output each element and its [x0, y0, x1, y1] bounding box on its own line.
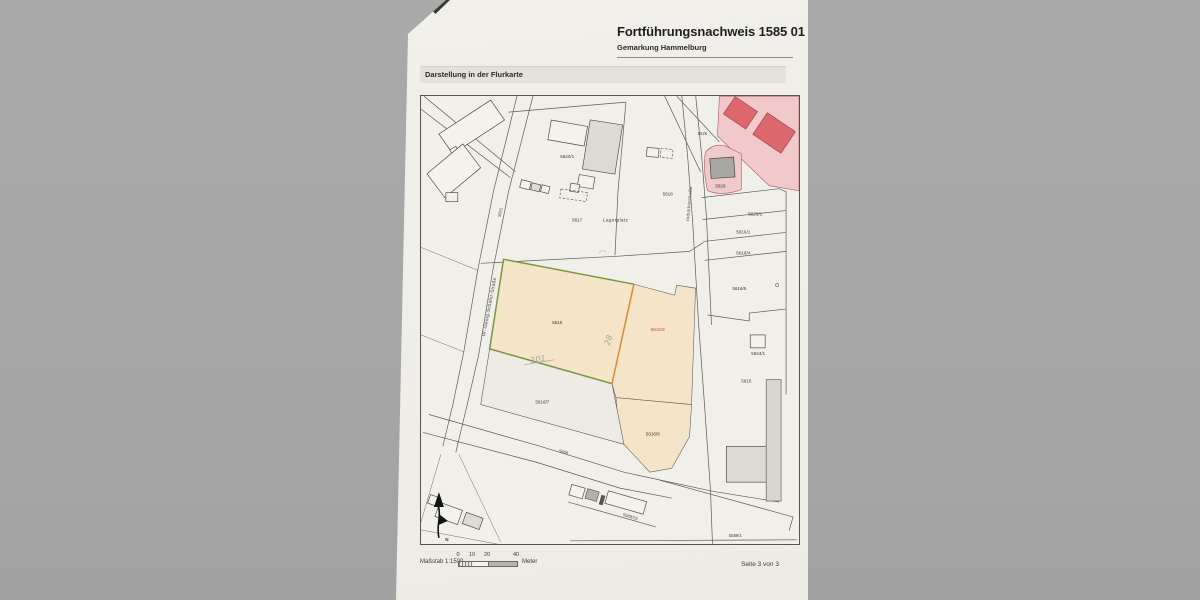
document-subtitle: Gemarkung Hammelburg	[617, 43, 707, 52]
scale-tick: 0	[456, 552, 459, 558]
map-label-5626-1: 5626/1	[748, 212, 762, 217]
section-bar: Darstellung in der Flurkarte	[420, 66, 786, 83]
page-corner-fold	[422, 0, 450, 14]
map-label-5616-4: 5616/4	[736, 250, 750, 255]
scale-tick: 40	[513, 552, 519, 558]
scale-bar-segment	[473, 562, 487, 566]
page-indicator: Seite 3 von 3	[741, 561, 779, 568]
map-label-5616-9: 5616/9	[651, 327, 665, 332]
header-divider	[617, 57, 793, 58]
map-label-5616: 5616	[552, 320, 563, 325]
cadastral-map-svg: N 101 28 5620/1 5617 Lagerplatz 5618 562…	[421, 96, 799, 544]
document-title: Fortführungsnachweis 1585 01	[617, 24, 805, 39]
map-label-5620-1: 5620/1	[560, 154, 574, 159]
north-label: N	[445, 537, 448, 542]
map-label-5615: 5615	[741, 379, 752, 384]
scale-tick: 10	[469, 552, 475, 558]
map-label-5617: 5617	[572, 218, 583, 223]
flurkarte-map: N 101 28 5620/1 5617 Lagerplatz 5618 562…	[420, 95, 800, 545]
map-label-5616-7: 5616/7	[535, 400, 549, 405]
section-label: Darstellung in der Flurkarte	[420, 67, 786, 83]
map-label-5625: 5625	[698, 131, 708, 136]
map-label-5589-1: 5589/1	[729, 533, 742, 538]
map-label-5616-5: 5616/5	[732, 286, 746, 291]
document-page: Fortführungsnachweis 1585 01 Gemarkung H…	[394, 0, 808, 600]
map-label-5616-8: 5616/8	[646, 431, 660, 436]
scan-background: Fortführungsnachweis 1585 01 Gemarkung H…	[0, 0, 1200, 600]
scale-label: Maßstab 1:1500	[420, 559, 463, 565]
scale-bar-segment	[459, 562, 473, 566]
map-label-5624-1: 5624/1	[751, 351, 765, 356]
scale-tick: 20	[484, 552, 490, 558]
map-label-5616-1: 5616/1	[736, 229, 750, 234]
scale-unit: Meter	[522, 559, 537, 565]
scale-bar-segment	[488, 562, 518, 566]
building-5624-1	[750, 335, 765, 348]
scale-bar	[458, 561, 518, 567]
map-label-lagerplatz: Lagerplatz	[603, 218, 629, 223]
map-label-5618: 5618	[663, 192, 674, 197]
gray-building-5626	[710, 157, 735, 179]
map-label-5626: 5626	[715, 184, 726, 189]
